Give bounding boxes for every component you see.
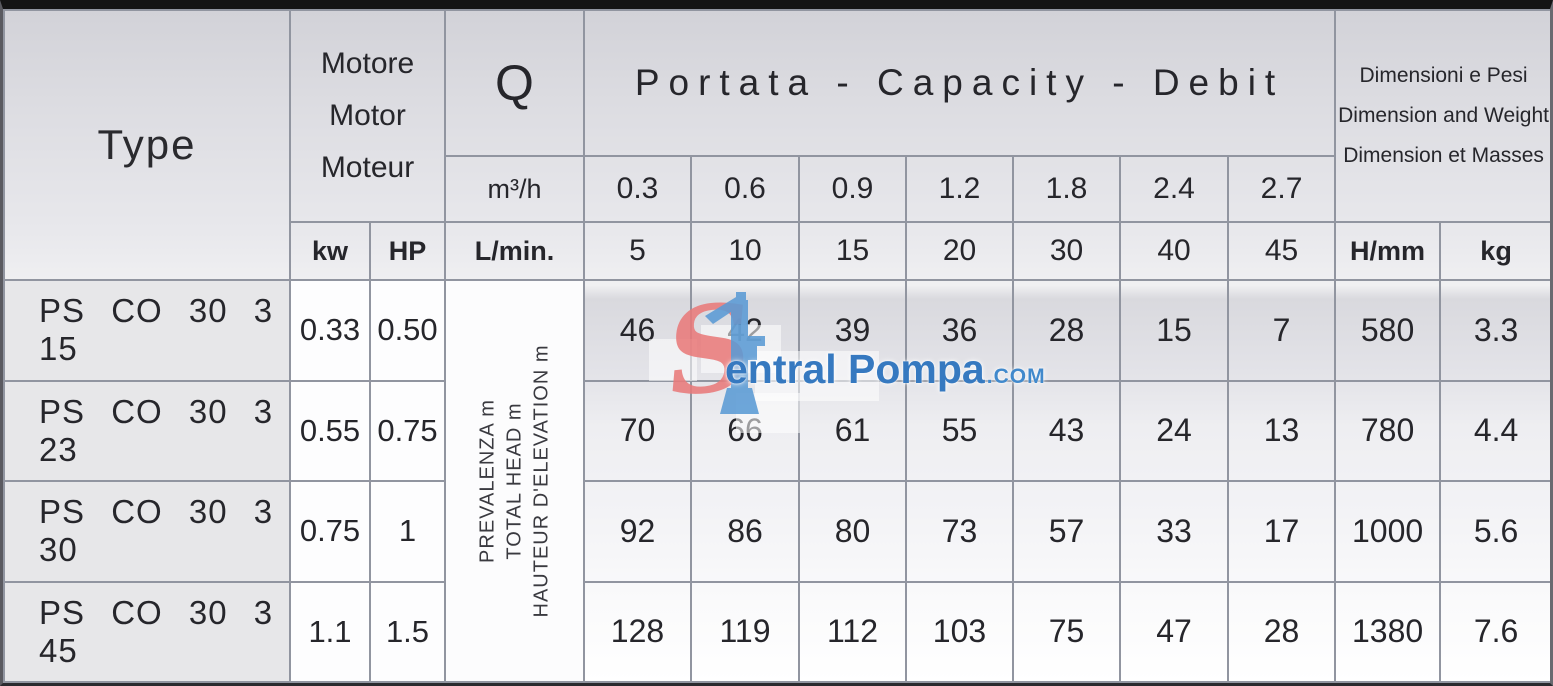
column-header-q: Q xyxy=(445,10,584,156)
type-cell: PS CO 30 3 30 xyxy=(4,481,290,582)
weight-kg-cell: 7.6 xyxy=(1440,582,1552,683)
hp-cell: 1 xyxy=(370,481,445,582)
head-value: 36 xyxy=(906,280,1013,381)
weight-kg-cell: 4.4 xyxy=(1440,381,1552,482)
kw-cell: 0.55 xyxy=(290,381,370,482)
head-value: 73 xyxy=(906,481,1013,582)
type-cell: PS CO 30 3 45 xyxy=(4,582,290,683)
kw-cell: 1.1 xyxy=(290,582,370,683)
unit-kw: kw xyxy=(290,222,370,280)
hp-cell: 0.75 xyxy=(370,381,445,482)
head-value: 17 xyxy=(1228,481,1335,582)
height-mm-cell: 1000 xyxy=(1335,481,1440,582)
hp-cell: 1.5 xyxy=(370,582,445,683)
capacity-lmin-value: 5 xyxy=(584,222,691,280)
head-value: 46 xyxy=(584,280,691,381)
dimensions-label-en: Dimension and Weight xyxy=(1336,96,1551,136)
capacity-m3h-value: 1.8 xyxy=(1013,156,1120,222)
table-row: PS CO 30 3 15 0.33 0.50 PREVALENZA m TOT… xyxy=(4,280,1552,381)
motor-label-it: Motore xyxy=(291,38,444,90)
head-value: 80 xyxy=(799,481,906,582)
unit-kg: kg xyxy=(1440,222,1552,280)
capacity-m3h-value: 0.9 xyxy=(799,156,906,222)
head-value: 33 xyxy=(1120,481,1228,582)
head-value: 75 xyxy=(1013,582,1120,683)
unit-m3h: m³/h xyxy=(445,156,584,222)
head-value: 7 xyxy=(1228,280,1335,381)
capacity-m3h-value: 1.2 xyxy=(906,156,1013,222)
capacity-m3h-value: 2.7 xyxy=(1228,156,1335,222)
type-cell: PS CO 30 3 15 xyxy=(4,280,290,381)
table-row: PS CO 30 3 45 1.1 1.5 128 119 112 103 75… xyxy=(4,582,1552,683)
table-row: PS CO 30 3 23 0.55 0.75 70 66 61 55 43 2… xyxy=(4,381,1552,482)
capacity-lmin-value: 45 xyxy=(1228,222,1335,280)
head-value: 13 xyxy=(1228,381,1335,482)
unit-hmm: H/mm xyxy=(1335,222,1440,280)
capacity-m3h-value: 2.4 xyxy=(1120,156,1228,222)
head-value: 61 xyxy=(799,381,906,482)
head-value: 86 xyxy=(691,481,799,582)
head-value: 15 xyxy=(1120,280,1228,381)
head-value: 66 xyxy=(691,381,799,482)
capacity-lmin-value: 30 xyxy=(1013,222,1120,280)
head-value: 57 xyxy=(1013,481,1120,582)
head-value: 103 xyxy=(906,582,1013,683)
table-row: PS CO 30 3 30 0.75 1 92 86 80 73 57 33 1… xyxy=(4,481,1552,582)
motor-label-fr: Moteur xyxy=(291,142,444,194)
capacity-lmin-value: 10 xyxy=(691,222,799,280)
total-head-note: PREVALENZA m TOTAL HEAD m HAUTEUR D'ELEV… xyxy=(474,311,555,651)
unit-lmin: L/min. xyxy=(445,222,584,280)
pump-spec-datasheet: Type Motore Motor Moteur Q Portata - Cap… xyxy=(0,0,1553,686)
head-value: 70 xyxy=(584,381,691,482)
capacity-lmin-value: 15 xyxy=(799,222,906,280)
head-value: 92 xyxy=(584,481,691,582)
head-value: 128 xyxy=(584,582,691,683)
kw-cell: 0.75 xyxy=(290,481,370,582)
weight-kg-cell: 5.6 xyxy=(1440,481,1552,582)
head-value: 112 xyxy=(799,582,906,683)
dimensions-label-it: Dimensioni e Pesi xyxy=(1336,56,1551,96)
hp-cell: 0.50 xyxy=(370,280,445,381)
total-head-note-cell: PREVALENZA m TOTAL HEAD m HAUTEUR D'ELEV… xyxy=(445,280,584,682)
capacity-lmin-value: 40 xyxy=(1120,222,1228,280)
head-value: 28 xyxy=(1228,582,1335,683)
weight-kg-cell: 3.3 xyxy=(1440,280,1552,381)
capacity-lmin-value: 20 xyxy=(906,222,1013,280)
pump-spec-table: Type Motore Motor Moteur Q Portata - Cap… xyxy=(3,9,1553,683)
capacity-m3h-value: 0.3 xyxy=(584,156,691,222)
height-mm-cell: 780 xyxy=(1335,381,1440,482)
head-value: 47 xyxy=(1120,582,1228,683)
head-value: 42 xyxy=(691,280,799,381)
column-header-dimensions: Dimensioni e Pesi Dimension and Weight D… xyxy=(1335,10,1552,222)
head-value: 43 xyxy=(1013,381,1120,482)
column-header-capacity: Portata - Capacity - Debit xyxy=(584,10,1335,156)
unit-hp: HP xyxy=(370,222,445,280)
kw-cell: 0.33 xyxy=(290,280,370,381)
type-cell: PS CO 30 3 23 xyxy=(4,381,290,482)
column-header-type: Type xyxy=(4,10,290,280)
head-value: 28 xyxy=(1013,280,1120,381)
column-header-motor: Motore Motor Moteur xyxy=(290,10,445,222)
height-mm-cell: 580 xyxy=(1335,280,1440,381)
height-mm-cell: 1380 xyxy=(1335,582,1440,683)
head-value: 119 xyxy=(691,582,799,683)
capacity-m3h-value: 0.6 xyxy=(691,156,799,222)
head-value: 55 xyxy=(906,381,1013,482)
dimensions-label-fr: Dimension et Masses xyxy=(1336,136,1551,176)
motor-label-en: Motor xyxy=(291,90,444,142)
head-value: 24 xyxy=(1120,381,1228,482)
head-value: 39 xyxy=(799,280,906,381)
